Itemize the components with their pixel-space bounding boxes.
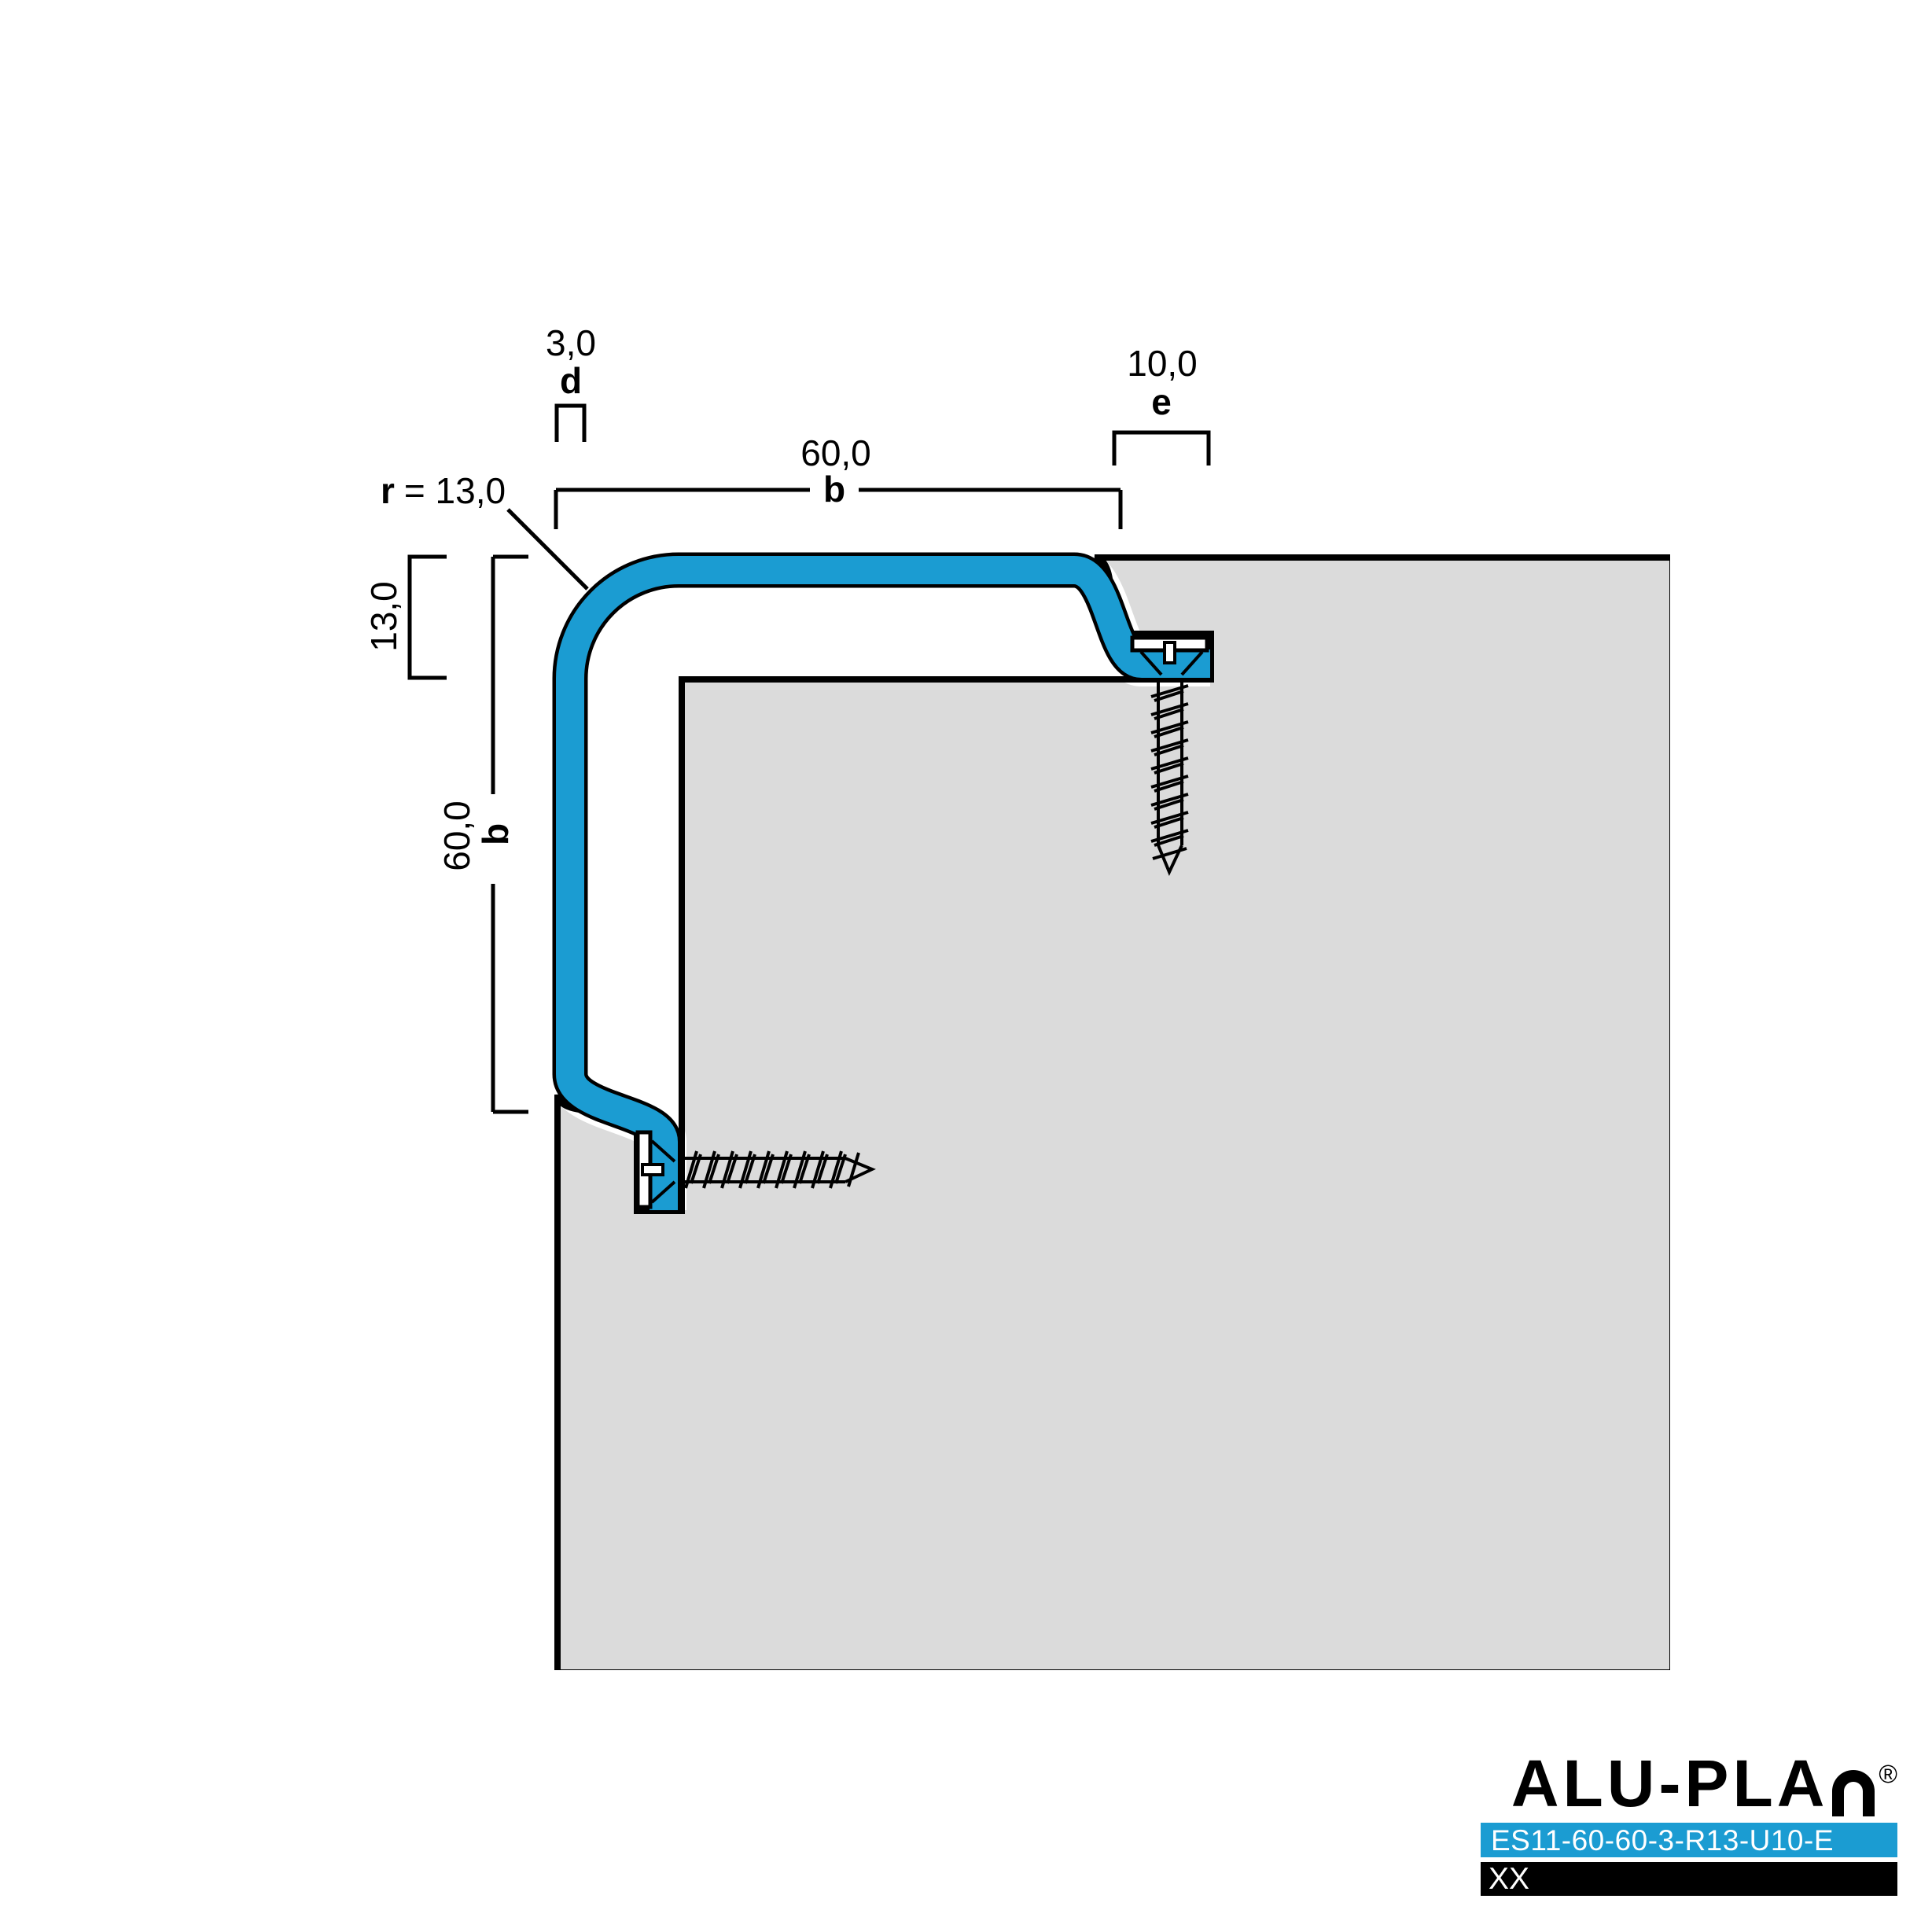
brand-logo: ALU-PLA® [1481, 1750, 1897, 1816]
product-code-bar: ES11-60-60-3-R13-U10-E [1481, 1823, 1897, 1857]
dim-b-left-value: 60,0 [436, 800, 477, 871]
dim-radius-name: r [381, 470, 395, 511]
dim-b-top-value: 60,0 [800, 432, 871, 473]
title-block: ALU-PLA® ES11-60-60-3-R13-U10-E XX [1481, 1750, 1897, 1896]
drawing-page: 3,0 d 10,0 e 60,0 b 13,0 60,0 b r= 13,0 [0, 0, 1932, 1932]
dim-radius-leader [508, 510, 587, 589]
brand-n-arch-icon [1832, 1770, 1875, 1816]
dim-e-label: e [1151, 381, 1172, 422]
cut-edge-cover-right [1670, 543, 1741, 1698]
brand-name: ALU-PLA [1511, 1750, 1829, 1816]
dim-e-bracket [1114, 432, 1209, 466]
dim-return-value: 13,0 [363, 581, 404, 652]
dim-radius-rest: = 13,0 [404, 470, 506, 511]
dim-b-left-label: b [475, 823, 516, 845]
dim-b-top-label: b [823, 469, 845, 510]
dim-return-bracket [410, 557, 447, 678]
registered-mark: ® [1879, 1761, 1897, 1787]
variant-bar: XX [1481, 1862, 1897, 1896]
substrate-fill [558, 558, 1673, 1673]
profile-cross-section-drawing: 3,0 d 10,0 e 60,0 b 13,0 60,0 b r= 13,0 [0, 0, 1932, 1932]
substrate [558, 558, 1673, 1673]
dim-d-value: 3,0 [546, 322, 596, 363]
dim-d-bracket [557, 406, 584, 442]
dim-d-label: d [560, 360, 582, 401]
screw-bottom-slot [642, 1165, 663, 1175]
cut-edge-cover-bottom [543, 1670, 1698, 1741]
dim-radius-label: r= 13,0 [381, 470, 506, 511]
screw-top-slot [1165, 642, 1175, 663]
dim-e-value: 10,0 [1127, 343, 1198, 384]
